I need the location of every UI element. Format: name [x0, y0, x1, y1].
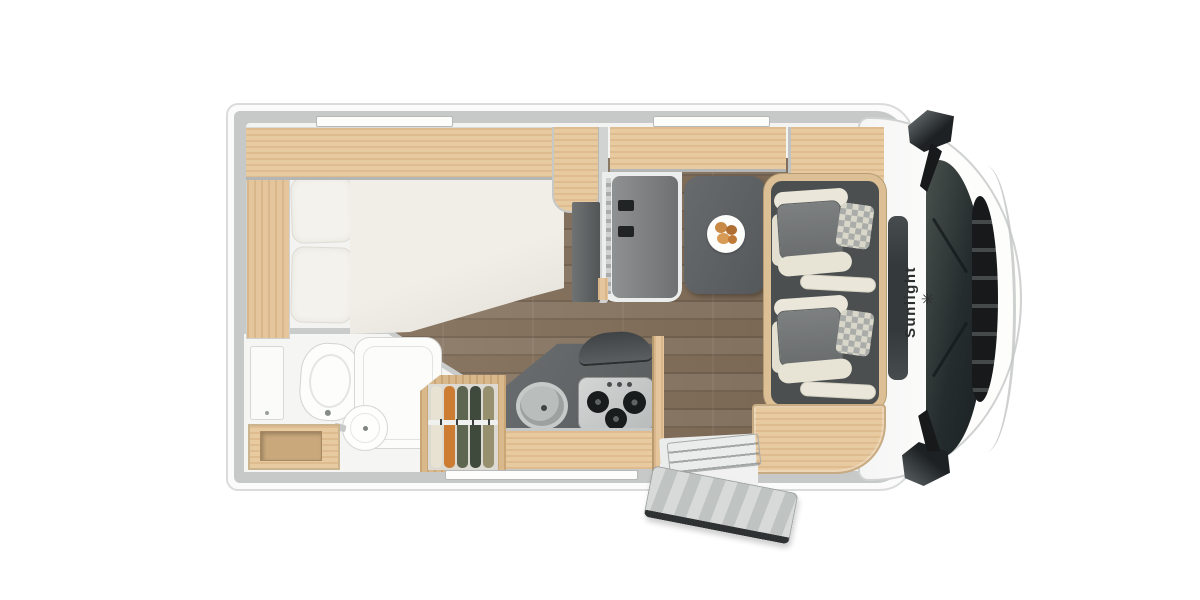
hanging-clothes	[457, 386, 468, 468]
hanger-hook-icon	[456, 419, 458, 425]
food-item	[715, 222, 727, 233]
motorhome-floorplan: Sunlight ✳	[0, 0, 1200, 600]
hanger-hook-icon	[472, 419, 474, 425]
kitchen-tall-cabinet	[552, 127, 600, 213]
hanger-hook-icon	[440, 419, 442, 425]
toilet-flush-icon	[325, 410, 331, 416]
fridge-side-panel	[572, 202, 600, 302]
overhead-cabinet-bed	[246, 127, 552, 180]
hob-burner-icon	[587, 391, 609, 413]
vanity-recess	[260, 431, 322, 461]
wiper-icon	[932, 218, 968, 274]
hanging-clothes	[483, 386, 494, 468]
roof-window	[653, 116, 770, 127]
hob-knob-icon	[627, 382, 632, 387]
seat-checkered-headrest	[835, 202, 875, 250]
bench-frame-strip	[606, 178, 611, 294]
hob-burner-icon	[605, 408, 627, 430]
bench-hinge-icon	[618, 226, 634, 237]
bathroom-cabinet-door	[250, 346, 284, 420]
wiper-icon	[932, 322, 968, 378]
toilet-lid	[307, 353, 353, 410]
front-bumper-line	[986, 166, 1016, 452]
wardrobe-interior	[428, 384, 498, 470]
driver-seat	[772, 190, 878, 294]
pillow	[290, 176, 354, 244]
sink-drain-icon	[363, 426, 368, 431]
overhead-cabinet-dinette	[610, 127, 786, 172]
kitchen-sink	[516, 382, 568, 430]
entry-sideboard	[752, 404, 886, 474]
hob-burner-icon	[623, 391, 646, 414]
food-item	[728, 235, 737, 244]
hob-knob-icon	[617, 382, 622, 387]
dinette-bench	[602, 172, 682, 302]
bench-hinge-icon	[618, 200, 634, 211]
kitchen-drawers	[500, 428, 664, 472]
plate-with-food	[707, 215, 745, 253]
sink-drain-icon	[541, 405, 547, 411]
bench-side-panel	[598, 278, 608, 300]
seat-checkered-headrest	[835, 309, 875, 357]
seat-armrest	[800, 381, 877, 400]
hanger-hook-icon	[488, 419, 490, 425]
bench-cushion	[612, 176, 678, 298]
passenger-seat	[772, 297, 878, 401]
pillow	[290, 246, 354, 324]
seat-armrest	[800, 274, 877, 293]
rear-shelf	[246, 157, 290, 339]
hanging-clothes	[444, 386, 455, 468]
hob-knob-icon	[607, 382, 612, 387]
seat-backrest	[776, 307, 844, 367]
roof-window	[316, 116, 453, 127]
side-window	[445, 470, 638, 480]
seat-backrest	[776, 200, 844, 260]
gas-hob	[578, 377, 654, 431]
brand-label: Sunlight	[902, 266, 919, 338]
brand-wordmark: Sunlight ✳	[906, 224, 934, 380]
vanity-counter	[248, 424, 340, 470]
brand-logo-icon: ✳	[919, 290, 938, 309]
hanging-clothes	[431, 386, 442, 468]
cabinet-handle-icon	[265, 411, 269, 415]
hanging-clothes	[470, 386, 481, 468]
bathroom-sink	[342, 405, 388, 451]
